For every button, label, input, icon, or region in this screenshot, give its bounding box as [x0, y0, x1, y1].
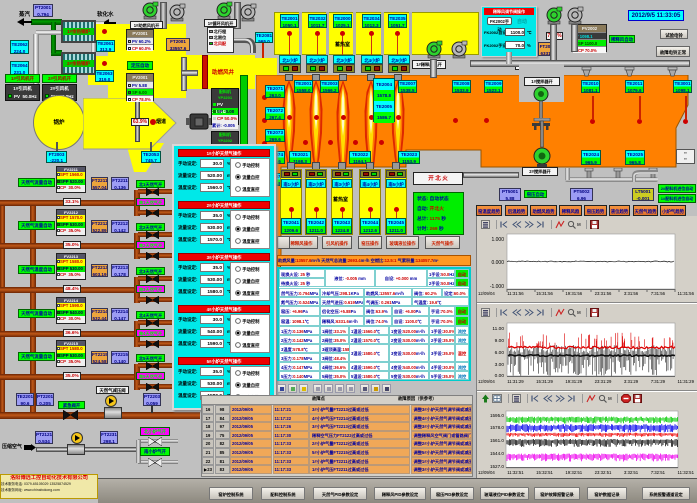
svg-text:1527.0: 1527.0: [490, 464, 504, 469]
svg-text:1561.0: 1561.0: [490, 438, 504, 443]
svg-text:3.00: 3.00: [495, 362, 505, 368]
svg-text:1595.0: 1595.0: [490, 413, 504, 418]
svg-text:6.00: 6.00: [495, 350, 505, 356]
svg-text:9.00: 9.00: [495, 338, 505, 344]
svg-text:0.00: 0.00: [495, 373, 505, 378]
svg-text:1.000: 1.000: [491, 237, 504, 243]
svg-text:-1.000: -1.000: [490, 284, 504, 290]
svg-text:11.00: 11.00: [492, 326, 504, 332]
svg-text:1578.0: 1578.0: [490, 425, 504, 430]
svg-text:0.000: 0.000: [491, 260, 504, 266]
svg-text:1544.0: 1544.0: [490, 451, 504, 456]
